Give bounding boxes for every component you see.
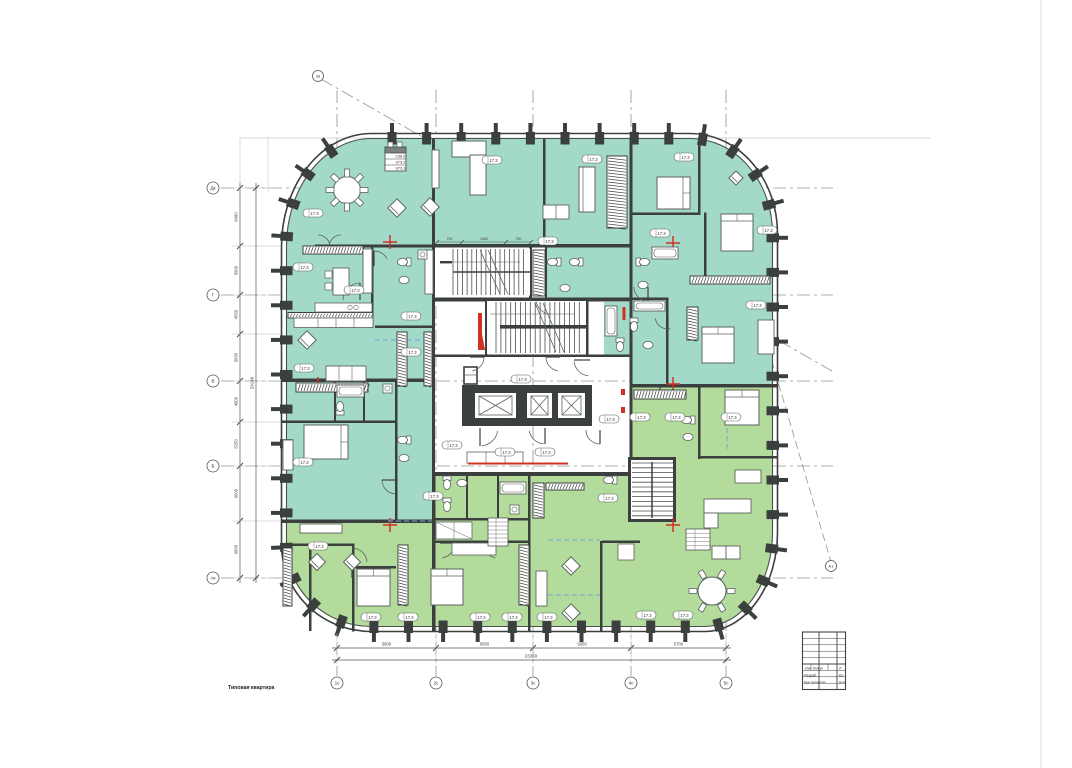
svg-text:17.3: 17.3 [368,615,377,620]
svg-text:17.3: 17.3 [672,415,681,420]
svg-text:17.3: 17.3 [764,228,773,233]
svg-text:238.6: 238.6 [396,154,407,159]
svg-text:4550: 4550 [234,309,239,319]
svg-text:5850: 5850 [480,642,490,647]
svg-text:Изм: Изм [805,666,812,670]
svg-text:6600: 6600 [234,488,239,498]
svg-text:29140: 29140 [250,376,255,389]
svg-text:17.3: 17.3 [477,615,486,620]
svg-text:5с: 5с [724,681,730,686]
svg-text:17.3: 17.3 [545,239,554,244]
svg-text:17.3: 17.3 [680,613,689,618]
svg-text:17.3: 17.3 [544,615,553,620]
svg-text:5650: 5650 [234,352,239,362]
svg-text:17.3: 17.3 [502,450,511,455]
svg-text:17.3: 17.3 [315,544,324,549]
svg-text:17.3: 17.3 [605,496,614,501]
svg-text:17.3: 17.3 [728,415,737,420]
svg-text:17.3: 17.3 [300,265,309,270]
svg-text:А1: А1 [829,563,835,568]
svg-text:17.3: 17.3 [301,366,310,371]
svg-text:17.3: 17.3 [351,288,360,293]
svg-text:23360: 23360 [525,654,538,659]
svg-text:373.2: 373.2 [396,160,407,165]
svg-text:Разраб.: Разраб. [804,673,817,677]
svg-text:5900: 5900 [382,642,392,647]
svg-text:2с: 2с [434,681,440,686]
svg-text:5900: 5900 [234,265,239,275]
svg-text:17.3: 17.3 [489,158,498,163]
svg-text:Кол.уч: Кол.уч [813,666,823,670]
svg-text:4800: 4800 [234,396,239,406]
svg-text:В: В [211,379,214,384]
svg-text:17.3: 17.3 [643,613,652,618]
svg-text:1480: 1480 [480,237,488,241]
svg-text:3с: 3с [531,681,537,686]
svg-text:5700: 5700 [674,642,684,647]
svg-text:6480: 6480 [234,212,239,222]
svg-text:17.3: 17.3 [405,615,414,620]
svg-text:1с: 1с [335,681,341,686]
svg-text:17.3: 17.3 [681,155,690,160]
svg-text:17.3: 17.3 [518,377,527,382]
svg-text:17.3: 17.3 [657,231,666,236]
svg-text:2в: 2в [316,73,320,78]
svg-text:6850: 6850 [234,544,239,554]
svg-text:373.3: 373.3 [396,166,407,171]
svg-text:17.3: 17.3 [542,450,551,455]
svg-text:17.3: 17.3 [509,615,518,620]
svg-text:17.3: 17.3 [408,350,417,355]
svg-text:17.3: 17.3 [449,443,458,448]
svg-text:5250: 5250 [234,439,239,449]
svg-text:17.3: 17.3 [606,417,615,422]
svg-text:17.3: 17.3 [408,314,417,319]
svg-text:17.3: 17.3 [637,415,646,420]
svg-text:Типовая квартира: Типовая квартира [228,685,275,691]
svg-text:750: 750 [516,237,522,241]
svg-text:Б: Б [211,464,214,469]
svg-text:17.3: 17.3 [589,157,598,162]
svg-text:Рук.проекта: Рук.проекта [804,680,826,684]
svg-text:17.3: 17.3 [753,303,762,308]
svg-text:4с: 4с [629,681,635,686]
svg-text:17.3: 17.3 [310,211,319,216]
svg-text:17.3: 17.3 [430,494,439,499]
svg-text:17.3: 17.3 [300,460,309,465]
svg-text:750: 750 [447,237,453,241]
svg-text:5850: 5850 [577,642,587,647]
svg-text:Бол: Бол [839,680,845,684]
svg-text:Ku: Ku [839,673,843,677]
